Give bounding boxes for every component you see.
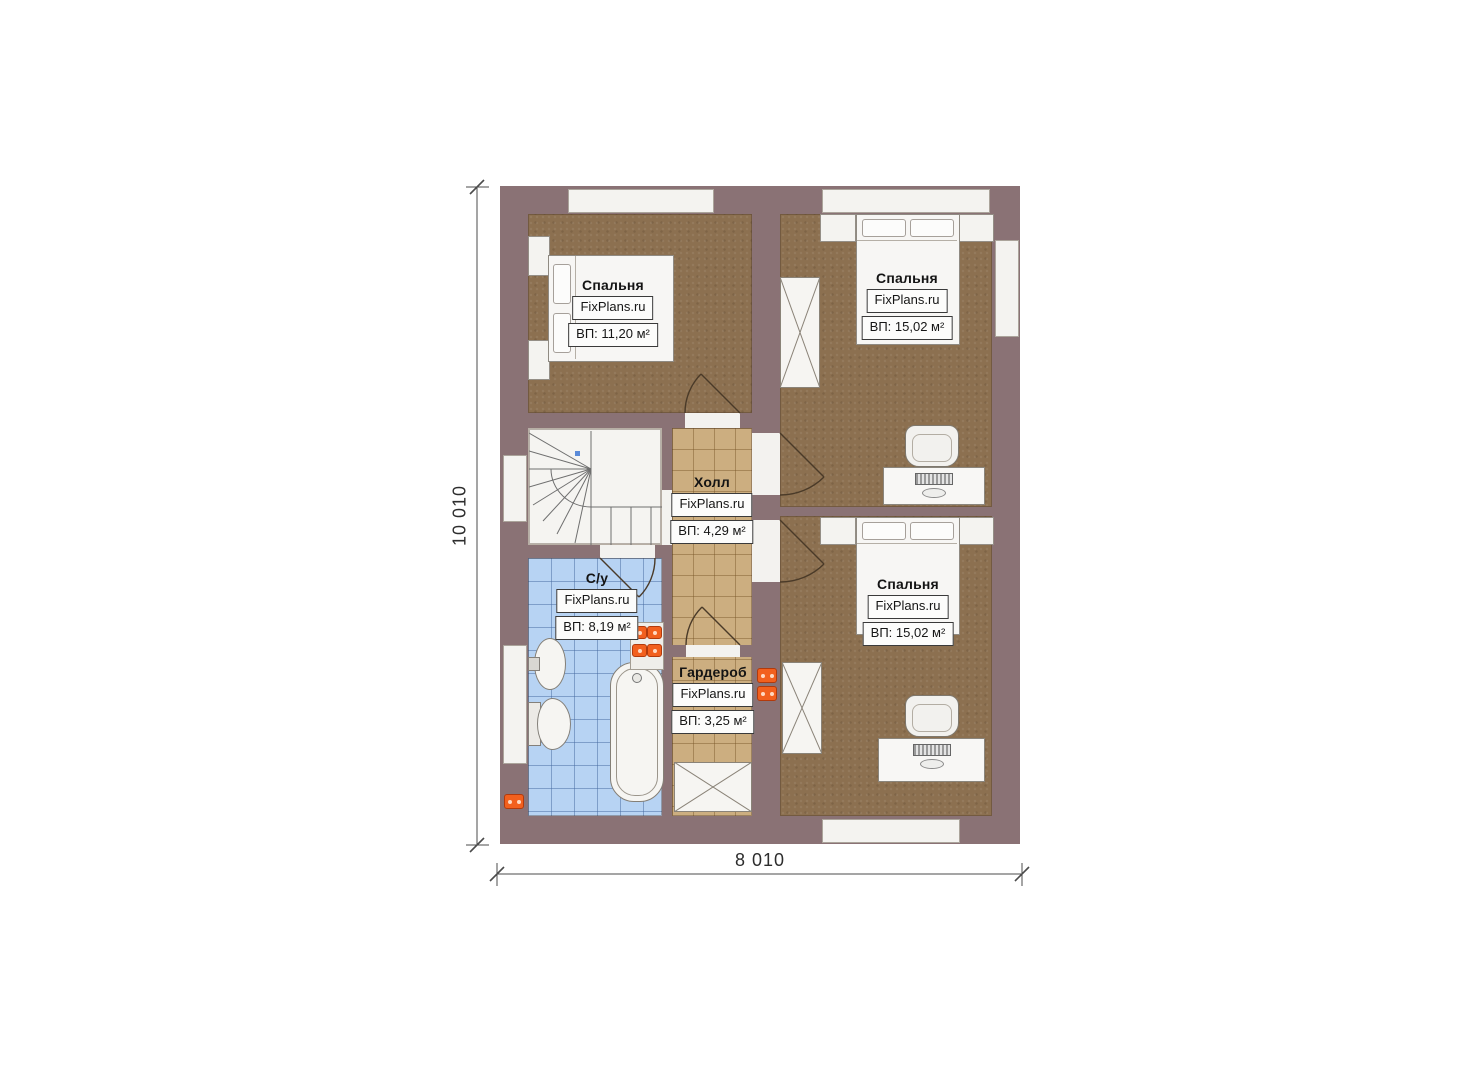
door-opening-wardrobe (686, 645, 740, 657)
wardrobe-cabinet-bedroomBR (782, 662, 822, 754)
room-name: Спальня (876, 270, 938, 286)
room-name: Спальня (877, 576, 939, 592)
room-label-hall: Холл FixPlans.ru ВП: 4,29 м² (670, 474, 753, 544)
room-area: ВП: 11,20 м² (568, 323, 658, 347)
chair-seat (912, 434, 952, 462)
room-brand: FixPlans.ru (671, 493, 752, 517)
pillow (910, 219, 954, 237)
wall-central (752, 214, 780, 816)
door-opening-bathroom (600, 545, 655, 558)
radiator-icon (647, 626, 662, 639)
room-brand: FixPlans.ru (556, 589, 637, 613)
room-label-bathroom: С/у FixPlans.ru ВП: 8,19 м² (555, 570, 638, 640)
room-brand: FixPlans.ru (572, 296, 653, 320)
room-name: С/у (586, 570, 608, 586)
window-left-bathroom (503, 645, 527, 764)
bathtub-faucet (632, 673, 642, 683)
window-top-bedroomTL (568, 189, 714, 213)
bathtub-fixture (610, 662, 664, 802)
desk-bedroomTR (883, 467, 985, 505)
room-area: ВП: 15,02 м² (862, 316, 953, 340)
radiator-icon (504, 794, 524, 809)
dimension-height-label: 10 010 (450, 481, 471, 551)
window-left-stairs (503, 455, 527, 522)
floor-plan: Спальня FixPlans.ru ВП: 11,20 м² Спальня… (500, 186, 1020, 844)
room-name: Холл (694, 474, 730, 490)
room-name: Спальня (582, 277, 644, 293)
desk-bedroomBR (878, 738, 985, 782)
dimension-width-label: 8 010 (700, 850, 820, 871)
radiator-icon (757, 668, 777, 683)
wardrobe-room-cabinet (674, 762, 752, 812)
mouse-icon (920, 759, 944, 769)
floor-plan-page: Спальня FixPlans.ru ВП: 11,20 м² Спальня… (0, 0, 1474, 1080)
pillow (862, 219, 906, 237)
chair-bedroomTR (905, 425, 959, 467)
nightstand (528, 340, 550, 380)
room-name: Гардероб (679, 664, 747, 680)
room-brand: FixPlans.ru (866, 289, 947, 313)
chair-bedroomBR (905, 695, 959, 737)
door-opening-bedroomTR (752, 433, 780, 495)
staircase-area (528, 428, 662, 545)
room-label-bedroom-bottom-right: Спальня FixPlans.ru ВП: 15,02 м² (863, 576, 954, 646)
window-right-bedroomTR (995, 240, 1019, 337)
room-area: ВП: 3,25 м² (671, 710, 754, 734)
radiator-icon (632, 644, 647, 657)
bed-headboard-line (857, 543, 957, 544)
window-top-bedroomTR (822, 189, 990, 213)
room-brand: FixPlans.ru (672, 683, 753, 707)
wall-bedroomTR-bedroomBR (780, 507, 992, 516)
room-area: ВП: 4,29 м² (670, 520, 753, 544)
stair-marker-dot (575, 451, 580, 456)
room-brand: FixPlans.ru (867, 595, 948, 619)
bed-headboard-line (857, 240, 957, 241)
chair-seat (912, 704, 952, 732)
radiator-icon (757, 686, 777, 701)
nightstand (959, 517, 994, 545)
door-opening-bedroomTL (685, 413, 740, 428)
door-opening-bedroomBR (752, 520, 780, 582)
nightstand (820, 214, 856, 242)
sink-tap (528, 657, 540, 671)
mouse-icon (922, 488, 946, 498)
room-label-bedroom-top-right: Спальня FixPlans.ru ВП: 15,02 м² (862, 270, 953, 340)
window-bottom-bedroomBR (822, 819, 960, 843)
sink-fixture (528, 638, 568, 688)
room-label-bedroom-top-left: Спальня FixPlans.ru ВП: 11,20 м² (568, 277, 658, 347)
wardrobe-cabinet-bedroomTR (780, 277, 820, 388)
toilet-fixture (528, 698, 570, 748)
keyboard-icon (913, 744, 951, 756)
nightstand (959, 214, 994, 242)
room-label-wardrobe: Гардероб FixPlans.ru ВП: 3,25 м² (671, 664, 754, 734)
pillow (862, 522, 906, 540)
pillow (910, 522, 954, 540)
radiator-icon (647, 644, 662, 657)
staircase-treads (529, 429, 663, 546)
toilet-bowl (537, 698, 571, 750)
room-area: ВП: 8,19 м² (555, 616, 638, 640)
nightstand (820, 517, 856, 545)
bathtub-inner (616, 668, 658, 796)
nightstand (528, 236, 550, 276)
room-area: ВП: 15,02 м² (863, 622, 954, 646)
keyboard-icon (915, 473, 953, 485)
